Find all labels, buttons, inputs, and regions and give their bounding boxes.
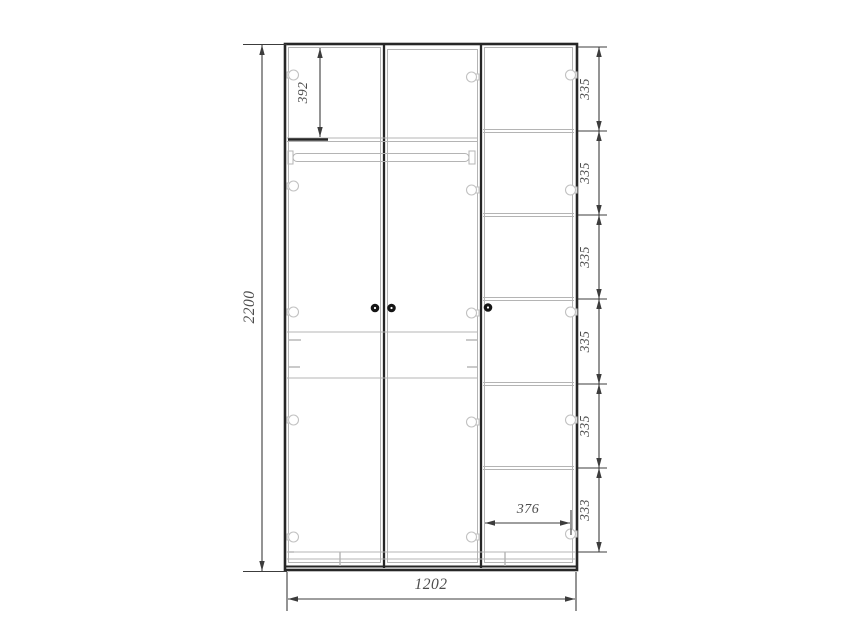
cabinet-outline [285,44,577,570]
dimension-overall-width: 1202 [287,572,576,611]
hinge-icon [289,70,299,80]
hinge-icon [467,417,477,427]
door-knob-icon [374,307,376,309]
dimension-right-shelf-chain: 335 335 335 335 335 333 [577,47,607,552]
hinge-icon [566,307,576,317]
door-panels [289,48,573,563]
hinge-icon [566,415,576,425]
hinge-icon [289,307,299,317]
dimension-label-1202: 1202 [415,576,448,593]
hinge-icon [289,415,299,425]
hinge-icon [566,185,576,195]
wardrobe-front-elevation-drawing: 392 2200 335 335 335 335 335 333 376 [0,0,856,642]
dimension-label-335: 335 [577,415,592,438]
dimension-top-compartment: 392 [288,48,328,140]
dimension-label-333: 333 [577,499,592,522]
dimension-label-335: 335 [577,78,592,101]
dimension-label-335: 335 [577,162,592,185]
middle-door-panel [388,50,478,563]
dimension-label-376: 376 [516,502,540,517]
door-knob-icon [390,307,392,309]
hinge-icon [289,181,299,191]
dimension-label-2200: 2200 [241,291,258,324]
cabinet-base [286,552,576,567]
dimension-label-335: 335 [577,331,592,354]
hinge-icon [289,532,299,542]
hinges [287,70,577,542]
right-door-panel [485,48,573,563]
left-compartment-interior [287,138,478,378]
dimension-label-335: 335 [577,246,592,269]
cabinet-carcass [285,44,577,570]
dimension-overall-height: 2200 [241,45,287,572]
hinge-icon [467,185,477,195]
dimension-label-392: 392 [295,82,310,105]
dimension-right-compartment-width: 376 [485,502,571,535]
left-door-panel [289,48,381,563]
hinge-icon [467,72,477,82]
right-compartment-shelves [483,130,574,470]
rod-bracket-right [469,151,475,164]
hinge-icon [467,308,477,318]
hinge-icon [566,70,576,80]
door-knob-icon [487,306,489,308]
hinge-icon [467,532,477,542]
